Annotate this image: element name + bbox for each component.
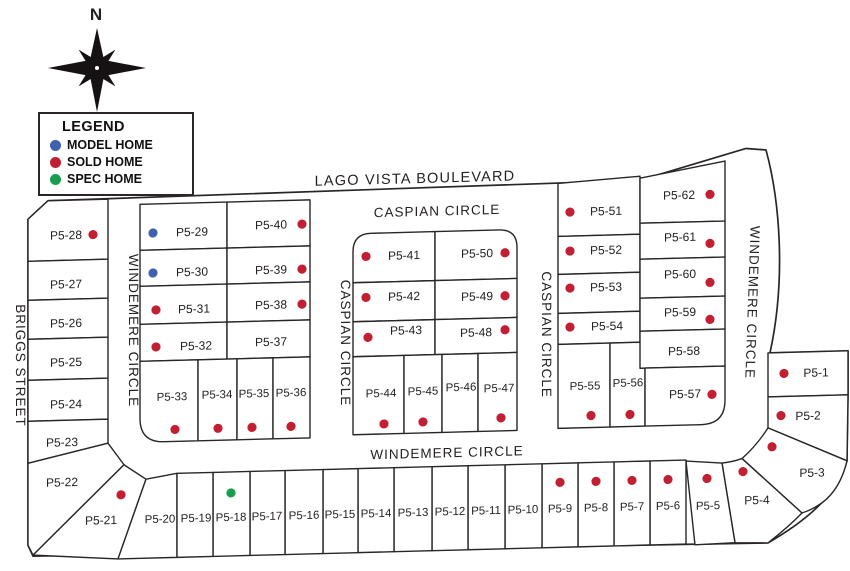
street-label-caspian-east: CASPIAN CIRCLE [539, 271, 554, 398]
legend-item-label: MODEL HOME [67, 138, 153, 152]
lot-P5-8: P5-8 [578, 462, 614, 547]
lot-P5-31: P5-31 [140, 284, 227, 324]
site-plan: N LAGO VISTA BOULEVARD CASPIAN CIRCLE CA… [0, 0, 850, 571]
lot-label: P5-27 [50, 277, 82, 292]
lot-P5-28: P5-28 [28, 199, 108, 261]
lot-P5-15: P5-15 [323, 469, 358, 554]
lot-P5-37: P5-37 [227, 320, 310, 359]
lot-P5-36: P5-36 [273, 357, 310, 439]
legend-item-sold: SOLD HOME [50, 155, 186, 169]
lot-P5-13: P5-13 [394, 467, 432, 552]
lot-P5-10: P5-10 [505, 464, 542, 549]
lot-P5-52: P5-52 [558, 234, 640, 274]
lot-label: P5-49 [461, 289, 493, 304]
lot-P5-59: P5-59 [640, 296, 725, 331]
legend-item-model: MODEL HOME [50, 138, 186, 152]
lot-label: P5-55 [570, 380, 601, 393]
lot-label: P5-4 [744, 493, 770, 508]
street-label-windemere-east: WINDEMERE CIRCLE [742, 226, 762, 379]
model-home-dot-icon [50, 140, 61, 151]
lot-label: P5-16 [289, 510, 320, 523]
lot-P5-57: P5-57 [645, 366, 725, 426]
lot-label: P5-23 [46, 435, 78, 450]
lot-P5-42: P5-42 [353, 281, 435, 322]
lot-label: P5-9 [548, 503, 572, 516]
lot-label: P5-12 [435, 506, 466, 519]
lot-label: P5-20 [145, 513, 176, 526]
lot-label: P5-41 [388, 248, 420, 263]
lot-P5-14: P5-14 [358, 468, 394, 553]
lot-P5-46: P5-46 [442, 353, 478, 432]
lot-P5-49: P5-49 [435, 278, 517, 319]
site-map: LAGO VISTA BOULEVARD CASPIAN CIRCLE CASP… [13, 146, 848, 563]
lot-label: P5-7 [620, 501, 644, 514]
lot-P5-27: P5-27 [28, 259, 108, 300]
lot-label: P5-53 [590, 280, 622, 295]
street-label-lago-vista: LAGO VISTA BOULEVARD [315, 169, 516, 190]
lot-label: P5-15 [325, 509, 356, 522]
legend-title: LEGEND [62, 119, 186, 135]
lot-P5-17: P5-17 [250, 471, 285, 556]
lot-label: P5-37 [255, 334, 287, 349]
lot-P5-1: P5-1 [768, 351, 848, 397]
lot-P5-16: P5-16 [285, 470, 323, 555]
lot-label: P5-26 [50, 316, 82, 331]
lot-label: P5-30 [176, 265, 208, 280]
lot-label: P5-24 [50, 397, 82, 412]
lot-P5-32: P5-32 [140, 322, 227, 361]
lot-label: P5-5 [696, 500, 720, 513]
lot-P5-39: P5-39 [227, 246, 310, 284]
lot-label: P5-36 [276, 387, 307, 400]
lot-label: P5-17 [252, 511, 283, 524]
legend: LEGEND MODEL HOME SOLD HOME SPEC HOME [38, 112, 194, 196]
lot-label: P5-10 [508, 504, 539, 517]
lot-label: P5-38 [255, 297, 287, 312]
lot-label: P5-6 [656, 500, 680, 513]
lot-P5-55: P5-55 [558, 343, 610, 428]
lot-label: P5-50 [461, 246, 493, 261]
legend-item-label: SPEC HOME [67, 172, 142, 186]
lot-label: P5-56 [613, 377, 644, 390]
lot-label: P5-31 [178, 301, 210, 316]
lot-label: P5-39 [255, 262, 287, 277]
lot-label: P5-22 [46, 475, 78, 490]
lot-P5-33: P5-33 [140, 360, 198, 443]
lot-label: P5-14 [361, 508, 392, 521]
lot-label: P5-19 [181, 512, 212, 525]
lot-label: P5-29 [176, 225, 208, 240]
lot-P5-12: P5-12 [432, 466, 468, 551]
lot-label: P5-35 [239, 388, 270, 401]
lot-P5-50: P5-50 [435, 229, 517, 280]
lot-P5-38: P5-38 [227, 282, 310, 322]
lot-label: P5-43 [390, 323, 422, 338]
lot-P5-54: P5-54 [558, 311, 640, 344]
lot-P5-61: P5-61 [640, 221, 725, 259]
lot-P5-45: P5-45 [404, 354, 442, 433]
lot-P5-44: P5-44 [353, 355, 404, 434]
lot-label: P5-60 [664, 267, 696, 282]
lot-P5-60: P5-60 [640, 257, 725, 298]
compass-rose: N [48, 5, 146, 112]
lot-label: P5-58 [668, 344, 700, 359]
lot-P5-30: P5-30 [140, 248, 227, 286]
street-label-caspian-top: CASPIAN CIRCLE [374, 202, 501, 220]
lot-label: P5-47 [484, 383, 515, 396]
lot-P5-7: P5-7 [614, 461, 650, 546]
lot-label: P5-57 [669, 387, 701, 402]
lot-label: P5-45 [408, 386, 439, 399]
lot-label: P5-54 [591, 319, 623, 334]
lot-label: P5-11 [471, 505, 501, 518]
lot-P5-11: P5-11 [468, 465, 505, 550]
lot-P5-9: P5-9 [542, 463, 578, 548]
lot-label: P5-40 [255, 217, 287, 232]
street-label-briggs: BRIGGS STREET [13, 304, 28, 427]
lot-label: P5-46 [446, 382, 477, 395]
legend-item-label: SOLD HOME [67, 155, 143, 169]
lot-label: P5-62 [663, 188, 695, 203]
site-plan-svg: N LAGO VISTA BOULEVARD CASPIAN CIRCLE CA… [0, 0, 850, 571]
lot-label: P5-44 [366, 388, 397, 401]
street-label-windemere-west: WINDEMERE CIRCLE [126, 254, 141, 408]
legend-item-spec: SPEC HOME [50, 172, 186, 186]
street-label-windemere-south: WINDEMERE CIRCLE [370, 443, 523, 462]
lot-P5-18: P5-18 [213, 471, 250, 556]
lot-label: P5-18 [216, 512, 247, 525]
lot-P5-51: P5-51 [558, 176, 640, 236]
lot-P5-34: P5-34 [198, 359, 237, 441]
lot-P5-48: P5-48 [435, 317, 517, 354]
lot-label: P5-3 [799, 465, 825, 480]
lot-label: P5-21 [85, 513, 117, 528]
lot-P5-25: P5-25 [28, 337, 108, 380]
lot-P5-58: P5-58 [640, 329, 725, 368]
lot-P5-47: P5-47 [478, 352, 517, 431]
lot-label: P5-1 [803, 365, 829, 380]
street-label-caspian-west: CASPIAN CIRCLE [338, 280, 353, 407]
lot-P5-29: P5-29 [140, 202, 227, 250]
lot-label: P5-33 [157, 391, 188, 404]
lot-label: P5-61 [664, 230, 696, 245]
lot-P5-24: P5-24 [28, 378, 108, 421]
lot-label: P5-2 [795, 409, 821, 424]
lot-P5-62: P5-62 [640, 161, 725, 223]
lot-label: P5-52 [590, 243, 622, 258]
lot-P5-19: P5-19 [177, 472, 213, 557]
sold-home-dot-icon [50, 157, 61, 168]
lot-label: P5-13 [398, 507, 429, 520]
lot-label: P5-51 [590, 204, 622, 219]
lot-label: P5-48 [460, 325, 492, 340]
lot-P5-41: P5-41 [353, 232, 435, 283]
lot-label: P5-32 [180, 338, 212, 353]
lot-label: P5-8 [584, 502, 608, 515]
compass-hub [95, 66, 99, 70]
lot-label: P5-59 [664, 305, 696, 320]
lot-P5-26: P5-26 [28, 298, 108, 339]
lot-P5-35: P5-35 [237, 358, 273, 440]
spec-home-dot-icon [50, 174, 61, 185]
lot-P5-43: P5-43 [353, 320, 435, 357]
lot-P5-40: P5-40 [227, 200, 310, 248]
lot-label: P5-34 [202, 389, 233, 402]
lot-P5-53: P5-53 [558, 272, 640, 313]
lot-label: P5-25 [50, 355, 82, 370]
lot-label: P5-28 [50, 228, 82, 243]
lot-label: P5-42 [388, 289, 420, 304]
compass-north-label: N [90, 5, 102, 24]
